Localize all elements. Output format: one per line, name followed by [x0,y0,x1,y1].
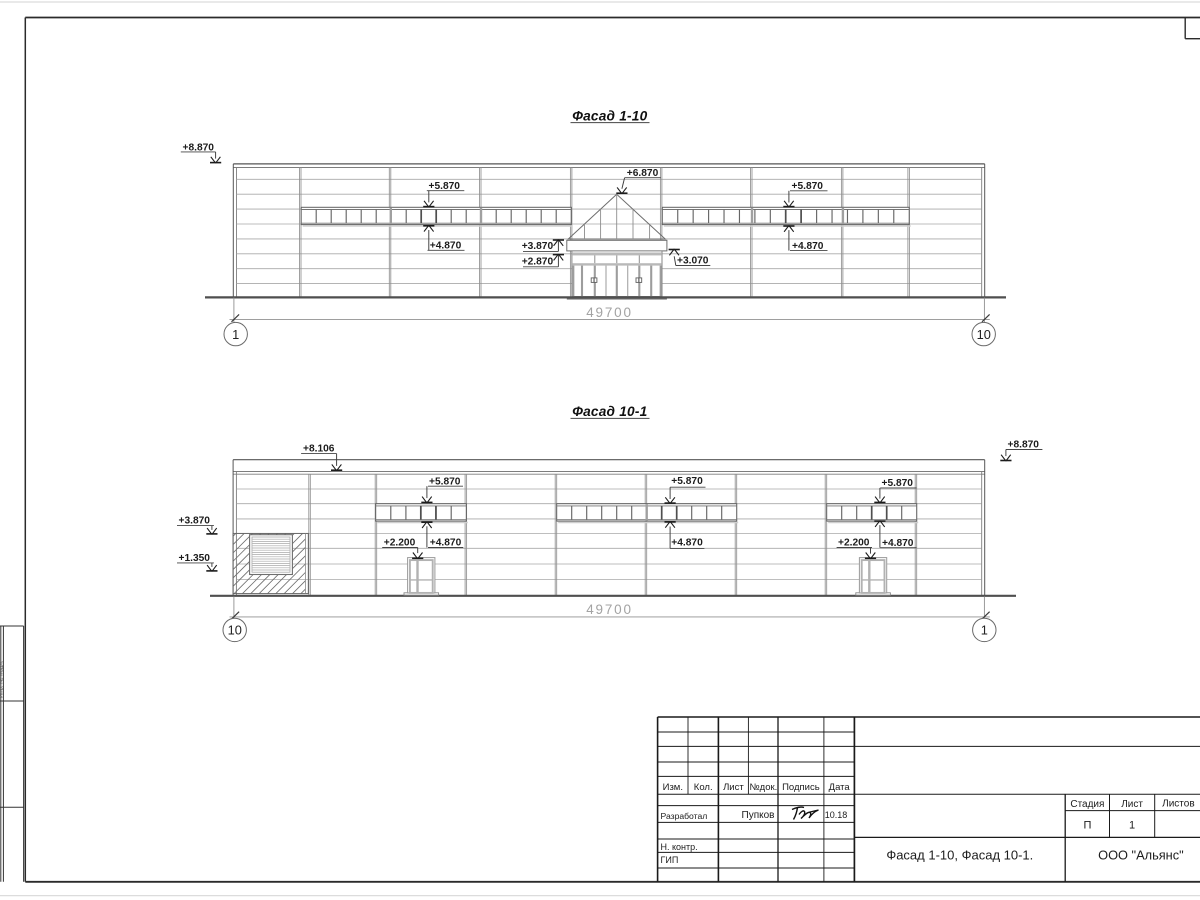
svg-text:1: 1 [1129,819,1135,831]
svg-text:+3.070: +3.070 [677,256,709,267]
svg-text:№док.: №док. [749,782,777,793]
svg-text:10: 10 [977,327,991,342]
svg-text:Кол.: Кол. [694,782,713,793]
svg-text:+2.870: +2.870 [522,257,554,268]
svg-text:Изм.: Изм. [663,782,683,793]
svg-text:49700: 49700 [586,305,633,320]
svg-text:Разработал: Разработал [661,811,708,821]
svg-text:Лист: Лист [723,782,744,793]
svg-text:Н. контр.: Н. контр. [661,842,698,852]
svg-text:Фасад 10-1: Фасад 10-1 [572,404,647,419]
svg-text:Дата: Дата [829,782,851,793]
svg-text:1: 1 [232,327,239,342]
svg-text:10: 10 [228,622,242,637]
svg-text:Листов: Листов [1162,798,1195,809]
svg-text:+8.870: +8.870 [1008,439,1040,450]
svg-text:+5.870: +5.870 [882,478,914,489]
svg-text:Фасад 1-10, Фасад 10-1.: Фасад 1-10, Фасад 10-1. [886,848,1033,863]
svg-text:+1.350: +1.350 [179,553,211,564]
svg-text:+4.870: +4.870 [671,537,703,548]
svg-text:+3.870: +3.870 [522,241,554,252]
svg-text:Пупков: Пупков [742,810,775,821]
svg-text:ГИП: ГИП [661,855,679,865]
svg-text:ООО "Альянс": ООО "Альянс" [1098,848,1184,863]
svg-text:Подпись: Подпись [782,782,820,793]
svg-text:Стадия: Стадия [1070,799,1104,810]
svg-text:+8.106: +8.106 [303,444,335,455]
svg-text:Фасад 1-10: Фасад 1-10 [572,108,647,123]
svg-text:+2.200: +2.200 [838,538,870,549]
svg-text:Инв. № подл.: Инв. № подл. [0,660,5,698]
svg-text:+2.200: +2.200 [384,538,416,549]
svg-text:Лист: Лист [1121,799,1143,810]
svg-text:П: П [1083,819,1091,831]
svg-text:+4.870: +4.870 [882,538,914,549]
svg-text:1: 1 [981,622,988,637]
svg-text:+5.870: +5.870 [671,476,703,487]
svg-text:+4.870: +4.870 [430,538,462,549]
svg-text:+3.870: +3.870 [179,516,211,527]
svg-text:49700: 49700 [586,602,633,617]
svg-text:10.18: 10.18 [825,810,848,820]
svg-text:+5.870: +5.870 [429,476,461,487]
